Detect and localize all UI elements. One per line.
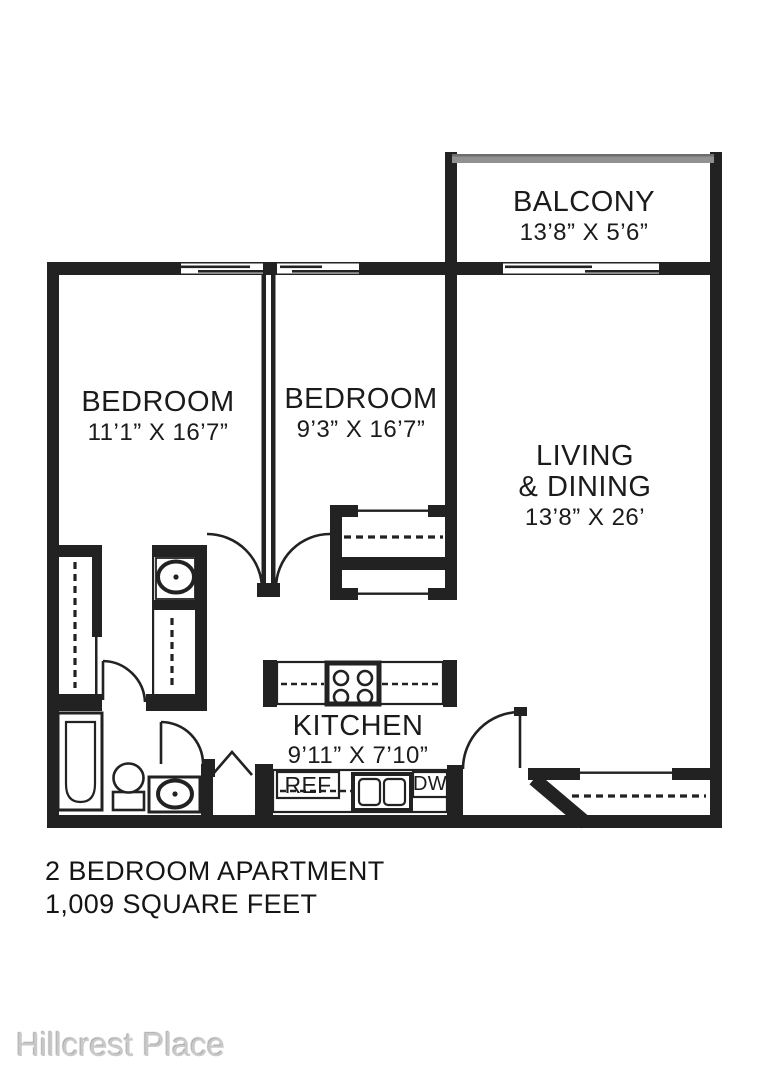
refrigerator-label: REF xyxy=(285,774,332,797)
entry-door-stop xyxy=(514,707,527,716)
floor-plan-page: BALCONY 13’8” X 5’6” BEDROOM 11’1” X 16’… xyxy=(0,0,771,1080)
living-label-line1: LIVING xyxy=(536,442,634,471)
entry-area xyxy=(447,707,527,828)
bedroom2-door-arc xyxy=(276,534,330,588)
bottom-wall xyxy=(47,815,722,828)
balcony-railing-edge xyxy=(452,154,714,157)
entry-closet xyxy=(528,768,712,823)
stove-counter xyxy=(263,660,457,707)
vanity-basin xyxy=(156,558,195,599)
right-wall xyxy=(710,152,722,828)
bathroom-door xyxy=(103,661,145,702)
bedroom1-label: BEDROOM xyxy=(81,388,234,417)
balcony-left-wall xyxy=(445,152,457,275)
vanity-linen-column xyxy=(146,545,207,711)
bedroom1-dims: 11’1” X 16’7” xyxy=(88,421,229,445)
kitchen-label: KITCHEN xyxy=(293,712,424,741)
stove xyxy=(327,663,379,704)
bathroom xyxy=(58,661,215,812)
sink-area-door xyxy=(161,722,203,764)
sliding-door xyxy=(500,264,662,274)
living-label-line2: & DINING xyxy=(519,473,652,502)
bedroom2-closet xyxy=(330,505,457,600)
bedroom2-dims: 9’3” X 16’7” xyxy=(297,418,426,442)
living-dims: 13’8” X 26’ xyxy=(525,506,645,530)
bedroom2-living-wall xyxy=(445,275,457,600)
entry-door xyxy=(463,712,520,769)
bathtub xyxy=(58,713,102,810)
kitchen-dims: 9’11” X 7’10” xyxy=(288,744,429,768)
summary-line1: 2 BEDROOM APARTMENT xyxy=(45,856,385,887)
bedroom-divider-wall xyxy=(257,275,280,597)
bedroom2-window xyxy=(277,264,362,274)
bedroom1-door-arc xyxy=(207,534,262,589)
entry-left-jamb xyxy=(447,765,463,828)
bifold-door xyxy=(213,752,252,775)
bedroom-doors xyxy=(207,534,330,589)
balcony-dims: 13’8” X 5’6” xyxy=(520,221,649,245)
summary-line2: 1,009 SQUARE FEET xyxy=(45,889,317,920)
dishwasher-label: DW xyxy=(413,774,447,794)
bedroom2-label: BEDROOM xyxy=(284,385,437,414)
bathroom-sink xyxy=(149,777,200,812)
bedroom1-window xyxy=(178,264,263,274)
double-sink xyxy=(353,774,411,810)
balcony-label: BALCONY xyxy=(513,188,655,217)
bedroom1-closet xyxy=(57,545,102,711)
toilet xyxy=(113,764,144,811)
property-watermark: Hillcrest Place xyxy=(16,1026,225,1064)
